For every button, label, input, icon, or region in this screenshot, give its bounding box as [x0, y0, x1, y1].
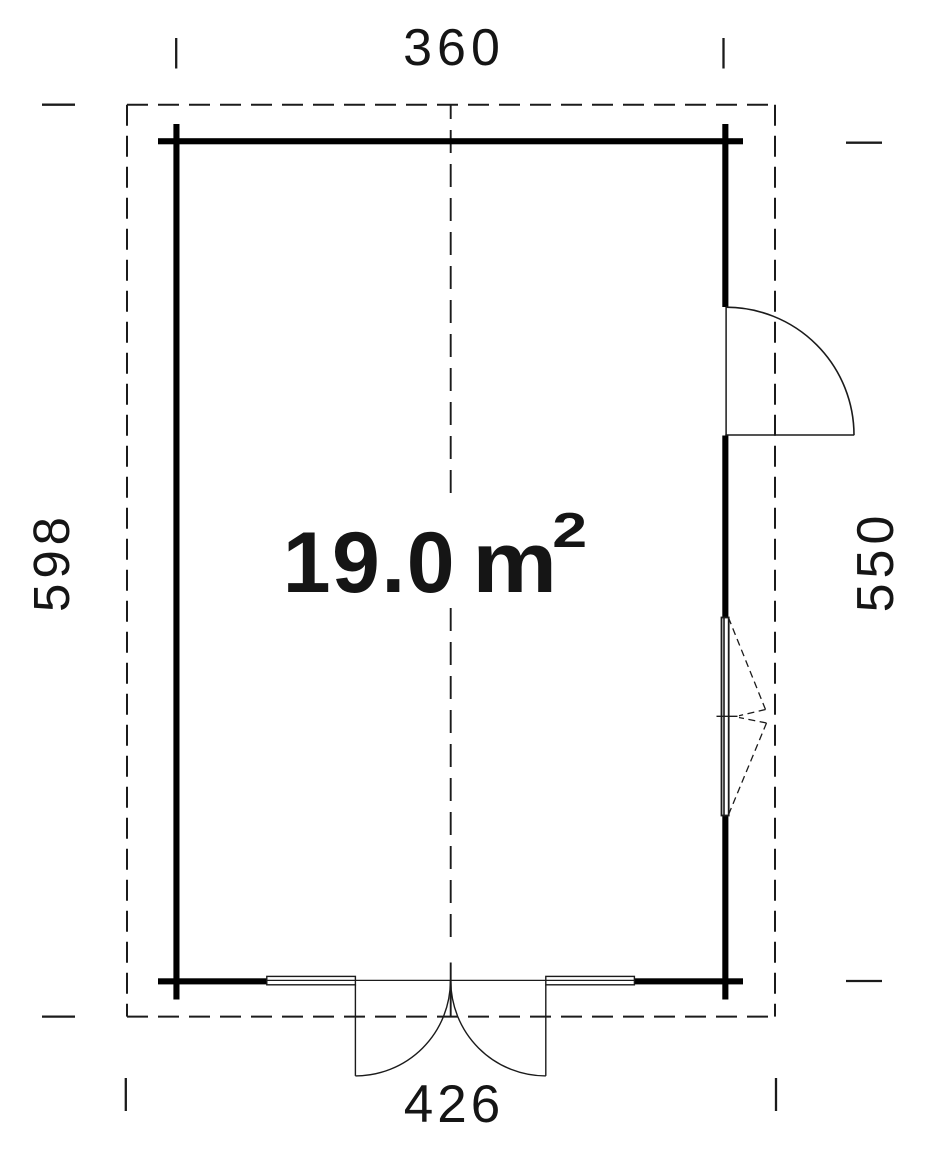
svg-text:550: 550	[847, 511, 905, 613]
svg-text:598: 598	[23, 512, 80, 612]
svg-text:426: 426	[404, 1075, 504, 1134]
svg-text:m: m	[472, 515, 557, 611]
svg-text:19.0: 19.0	[283, 515, 456, 611]
svg-text:360: 360	[403, 19, 505, 77]
svg-text:2: 2	[552, 503, 587, 558]
